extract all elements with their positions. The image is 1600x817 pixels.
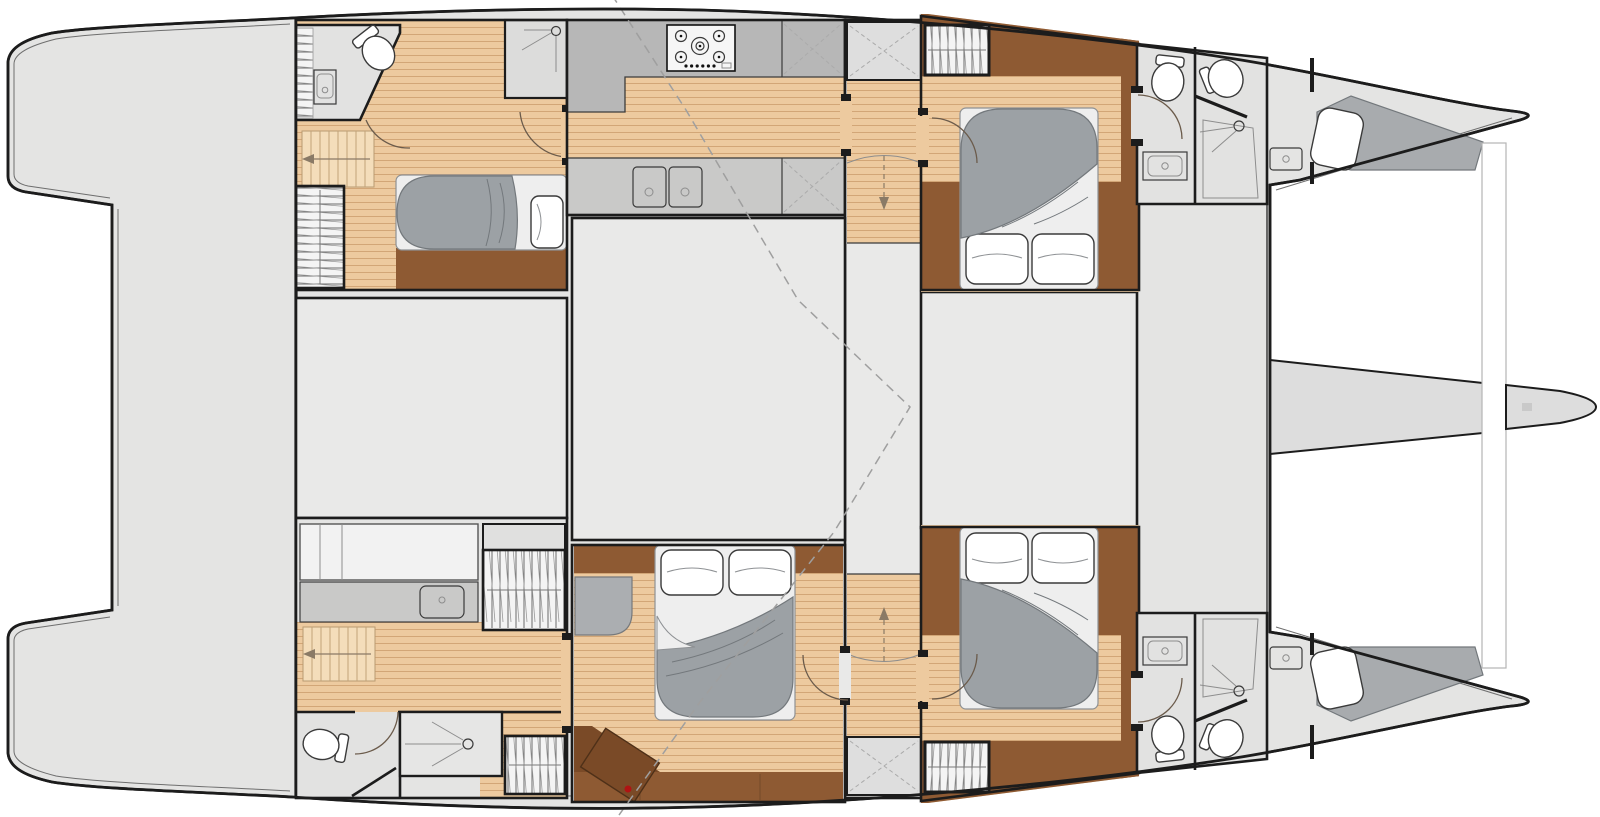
vanity-stool: [575, 577, 632, 635]
bowsprit-fitting: [1522, 403, 1532, 411]
galley: [567, 20, 845, 215]
shower-room: [400, 712, 502, 776]
gas-hob: [667, 25, 735, 71]
catamaran-floor-plan: [0, 0, 1600, 817]
saloon: [572, 218, 845, 540]
hanging-locker: [505, 736, 565, 794]
pillow: [729, 550, 791, 595]
starboard-midship-room: [921, 292, 1137, 528]
companionway-corridor: [840, 20, 923, 798]
vanity-counter: [300, 582, 478, 622]
stairs: [303, 627, 375, 681]
locker-top: [483, 524, 565, 550]
double-bed: [396, 175, 567, 250]
bathroom-shelves: [297, 28, 313, 118]
starboard-forward-cabin: [916, 525, 1139, 803]
stairs-down-landing: [847, 80, 921, 243]
bowsprit: [1506, 385, 1596, 429]
hanging-locker: [483, 550, 565, 630]
marker-dot: [625, 786, 632, 793]
wardrobe: [296, 186, 344, 288]
pillow: [531, 196, 563, 248]
port-aft-cabin: [296, 20, 574, 290]
galley-counter-aft: [567, 158, 845, 215]
starboard-aft-quarters: [296, 518, 574, 798]
pillow: [661, 550, 723, 595]
forestay-longitudinal: [1482, 143, 1506, 668]
double-bed: [655, 545, 795, 720]
owner-cabin: [572, 545, 851, 802]
crossbeam: [1270, 360, 1483, 454]
stairs-up-landing: [847, 574, 921, 737]
duvet: [397, 176, 517, 249]
floor-plan-svg: [0, 0, 1600, 817]
port-forward-cabin: [916, 14, 1139, 292]
shower-cubicle: [505, 20, 567, 98]
cabinet-row: [300, 524, 478, 580]
stairs: [302, 131, 374, 187]
bed-base: [396, 248, 567, 290]
port-midship-room: [296, 298, 567, 518]
